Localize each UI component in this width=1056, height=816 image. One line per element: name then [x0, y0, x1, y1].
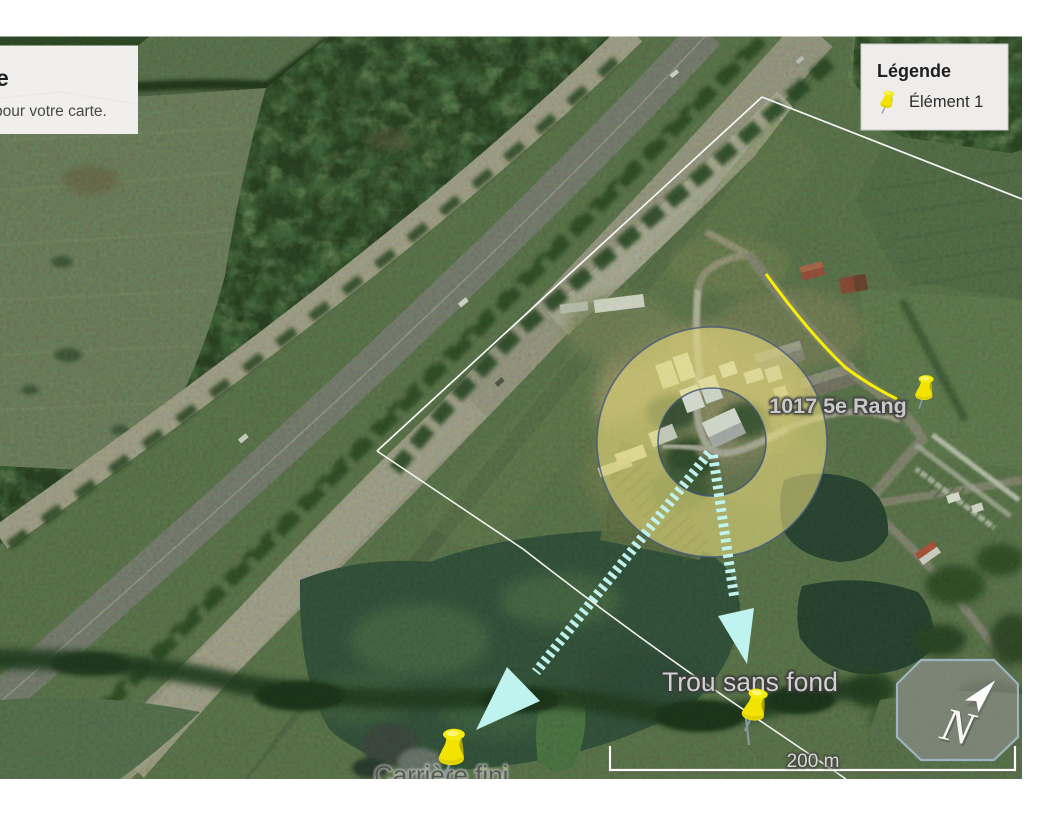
svg-text:200 m: 200 m: [787, 751, 840, 772]
svg-text:Élément 1: Élément 1: [909, 92, 983, 111]
svg-text:Légende: Légende: [877, 61, 951, 81]
svg-text:e: e: [0, 65, 9, 91]
svg-text:1017 5e Rang: 1017 5e Rang: [769, 394, 906, 418]
svg-text:pour votre carte.: pour votre carte.: [0, 103, 107, 120]
